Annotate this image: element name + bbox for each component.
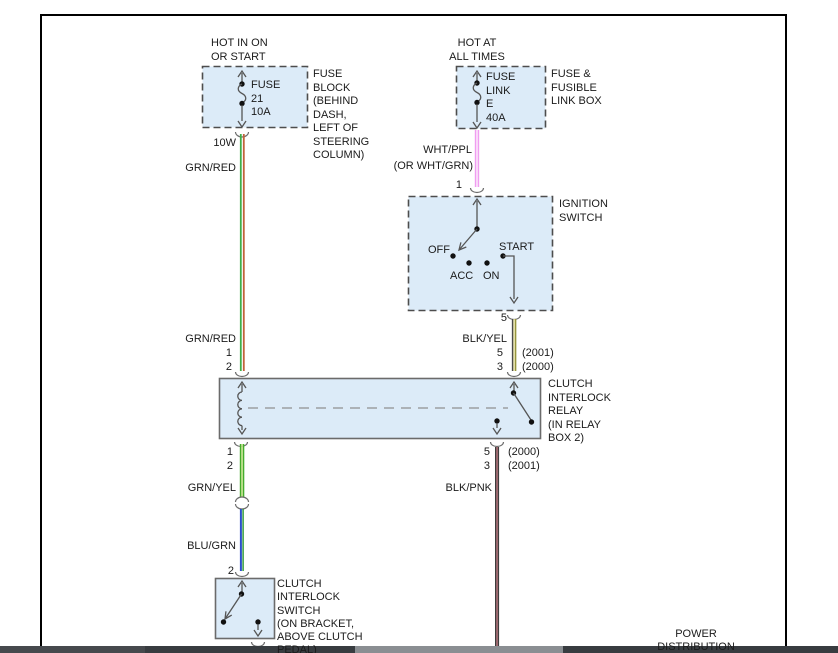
wire-grn-red [236,134,249,377]
relay-name: CLUTCH INTERLOCK RELAY (IN RELAY BOX 2) [548,378,611,446]
scrollbar-track-segment[interactable] [0,646,145,653]
wire-gauge-10w: 10W [204,137,236,151]
relay-pins-bottom-right: 5 3 [474,445,490,473]
relay-years-bottom-right: (2000) (2001) [508,445,540,473]
ignition-switch-symbol [409,197,553,320]
clutch-switch-symbol [216,579,275,647]
scrollbar-thumb[interactable] [355,646,563,653]
ignition-switch-name: IGNITION SWITCH [559,197,608,225]
wiring-diagram-page: HOT IN ON OR START FUSE 21 10A FUSE BLOC… [0,0,838,653]
wire-label-grn-yel: GRN/YEL [180,482,236,496]
wire-blk-pnk [496,447,499,646]
hot-at-all-times-header: HOT AT ALL TIMES [437,37,517,64]
ignition-pin-1: 1 [450,179,462,193]
inline-connector [236,497,249,509]
fuse-21-label: FUSE 21 10A [251,79,280,120]
diagram-canvas [0,0,838,653]
wire-grn-yel [241,444,244,497]
relay-pins-top-right: 5 3 [487,346,503,374]
wire-blk-yel [508,319,521,377]
clutch-switch-name: CLUTCH INTERLOCK SWITCH (ON BRACKET, ABO… [277,578,363,653]
wire-label-wht-ppl-alt: (OR WHT/GRN) [390,160,473,174]
wire-label-blk-yel: BLK/YEL [450,333,507,347]
ignition-pin-5: 5 [495,312,507,326]
ignition-pos-off: OFF [422,244,450,258]
ignition-pos-on: ON [483,270,500,284]
fuse-block-name: FUSE BLOCK (BEHIND DASH, LEFT OF STEERIN… [313,68,369,163]
wire-blu-grn [236,509,249,577]
wire-label-grn-red-upper: GRN/RED [178,162,236,176]
ignition-pos-start: START [499,241,534,255]
relay-pins-bottom-left: 1 2 [217,445,233,473]
fuse-link-e-label: FUSE LINK E 40A [486,71,515,125]
ignition-pos-acc: ACC [450,270,473,284]
wire-label-grn-red-lower: GRN/RED [178,333,236,347]
hot-in-on-header: HOT IN ON OR START [211,37,268,64]
page-frame [41,15,786,646]
wire-label-wht-ppl: WHT/PPL [412,144,472,158]
wire-label-blk-pnk: BLK/PNK [438,482,492,496]
relay-years-top-right: (2001) (2000) [522,346,554,374]
relay-pins-top-left: 1 2 [216,346,232,374]
relay-symbol [220,379,541,447]
clutch-switch-pin-2: 2 [218,565,234,579]
wire-label-blu-grn: BLU/GRN [180,540,236,554]
power-distribution-ref: POWER DISTRIBUTION [650,628,742,653]
fusible-link-box-name: FUSE & FUSIBLE LINK BOX [551,68,602,109]
